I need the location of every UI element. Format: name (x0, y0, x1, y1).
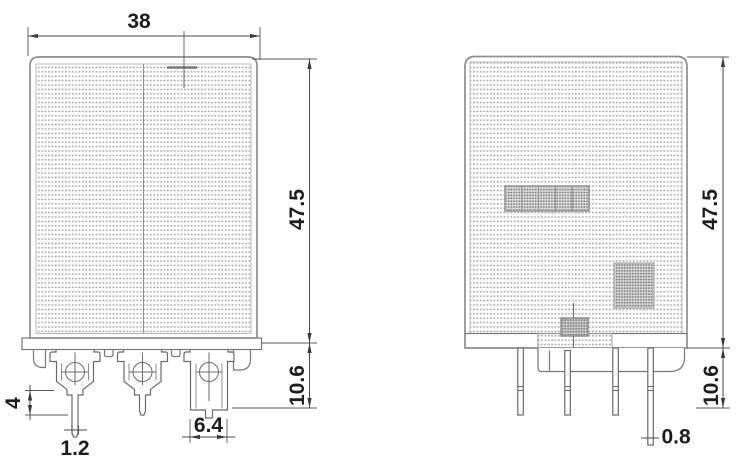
side-view: 47.5 10.6 0.8 (465, 57, 730, 449)
pin-2 (565, 351, 571, 416)
dim-text-side-height: 47.5 (699, 189, 722, 230)
arrowhead (721, 57, 725, 67)
terminal-3 (184, 350, 234, 419)
arrowhead (28, 391, 32, 401)
terminal-2 (118, 350, 168, 416)
flange-tab-2 (172, 350, 181, 357)
arrowhead (721, 348, 725, 358)
pin-1 (518, 348, 524, 415)
dim-front-width: 38 (28, 10, 260, 60)
terminal-1 (50, 350, 100, 438)
dim-text-blade-width: 6.4 (194, 414, 224, 437)
side-square-patch (614, 263, 654, 308)
side-label-strip (505, 186, 589, 211)
arrowhead (250, 34, 260, 38)
arrowhead (28, 34, 38, 38)
boss-texture (562, 319, 587, 335)
arrowhead (307, 333, 311, 343)
technical-drawing-page: 38 47.5 10.6 4 1 (0, 0, 750, 469)
pin-3 (613, 348, 619, 415)
side-base-skirt (538, 348, 685, 372)
label-strip-texture (506, 187, 588, 210)
arrowhead (307, 343, 311, 353)
left-corner-skirt (34, 350, 46, 368)
arrowhead (721, 338, 725, 348)
dim-text-front-height: 47.5 (286, 189, 309, 230)
flange-tab-1 (105, 350, 114, 357)
right-corner-skirt (234, 350, 251, 371)
square-patch-texture (615, 264, 653, 307)
dim-text-front-width: 38 (127, 10, 151, 33)
pin-4 (648, 348, 654, 445)
dim-front-blade-width: 6.4 (182, 414, 235, 443)
front-base-flange (22, 338, 262, 350)
arrowhead (307, 59, 311, 69)
dim-text-side-terminal-height: 10.6 (700, 365, 723, 406)
dim-front-pin-length: 4 (2, 385, 68, 420)
dim-text-pin-length: 4 (2, 397, 25, 409)
dim-side-height: 47.5 10.6 (687, 57, 730, 408)
dim-text-pin-width: 1.2 (60, 437, 89, 460)
dim-text-pin-thickness: 0.8 (662, 426, 692, 449)
arrowhead (28, 405, 32, 415)
dim-text-front-terminal-height: 10.6 (286, 365, 309, 406)
front-view: 38 47.5 10.6 4 1 (2, 10, 317, 460)
relay-outline-drawing: 38 47.5 10.6 4 1 (0, 0, 750, 469)
